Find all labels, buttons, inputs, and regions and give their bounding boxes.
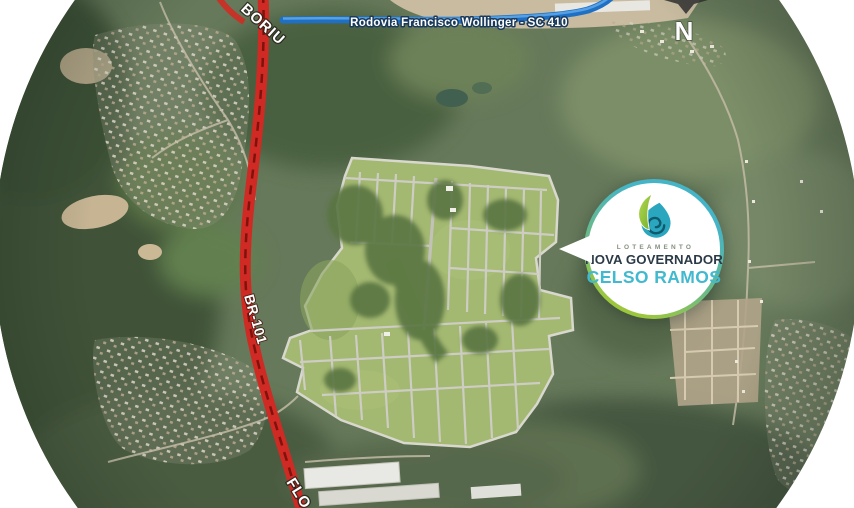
badge-title-line1: NOVA GOVERNADOR: [585, 252, 723, 267]
badge-kicker: LOTEAMENTO: [614, 244, 694, 251]
vignette: [0, 0, 854, 508]
leaf-drop-icon: [632, 192, 676, 242]
aerial-map-graphic: BR-101 Rodovia Francisco Wollinger - SC …: [0, 0, 854, 508]
development-badge: LOTEAMENTO NOVA GOVERNADOR CELSO RAMOS: [584, 179, 724, 319]
satellite-map: BR-101 Rodovia Francisco Wollinger - SC …: [0, 0, 854, 508]
badge-title-line2: CELSO RAMOS: [587, 267, 722, 288]
